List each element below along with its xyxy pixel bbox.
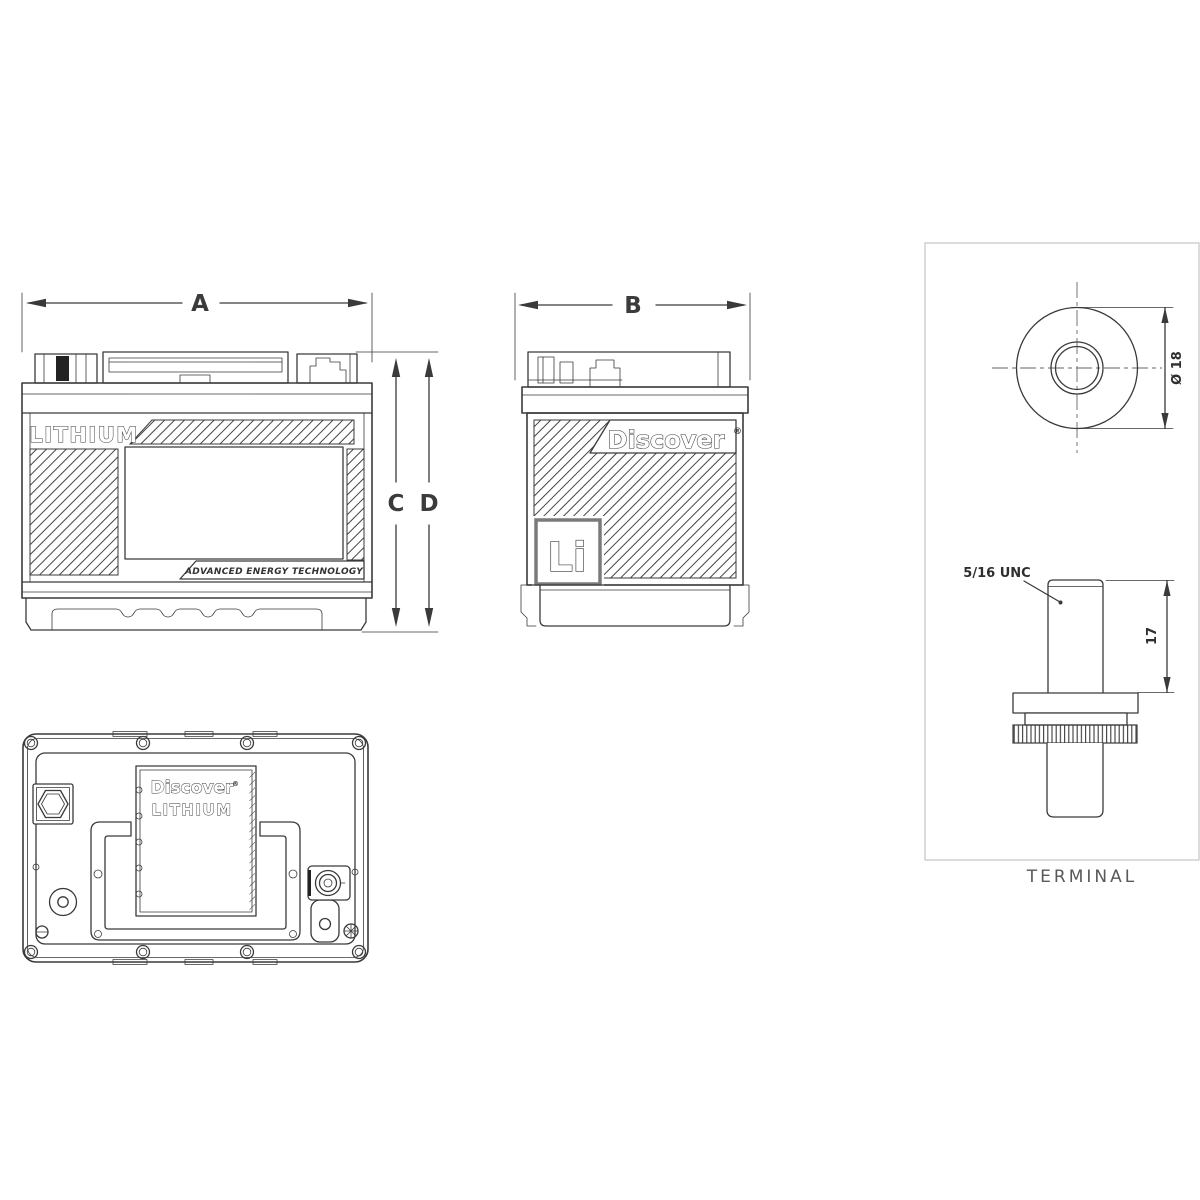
dim-label-B: B bbox=[624, 293, 642, 319]
top-brand-trademark: ® bbox=[232, 780, 239, 788]
terminal-caption: TERMINAL bbox=[1026, 867, 1137, 887]
front-label-area bbox=[125, 447, 343, 559]
hex-terminal bbox=[33, 784, 73, 824]
terminal-detail-panel: Ø 18 5/16 UNC 17 TERMINAL bbox=[925, 243, 1199, 887]
front-tagline: ADVANCED ENERGY TECHNOLOGY bbox=[184, 567, 364, 577]
dim-label-A: A bbox=[191, 291, 209, 317]
dim-label-D: D bbox=[419, 491, 438, 517]
slotted-screw bbox=[36, 926, 48, 938]
terminal-tab bbox=[311, 900, 339, 942]
dim-post-diameter: Ø 18 bbox=[1170, 351, 1185, 385]
dim-label-C: C bbox=[388, 491, 405, 517]
top-brand-discover: Discover bbox=[151, 778, 234, 798]
top-brand-lithium: LITHIUM bbox=[151, 801, 232, 819]
knurled-ring bbox=[1013, 725, 1137, 743]
drawing-canvas: A ADVANCED ENERGY TECHNOLOGY LITHIUM bbox=[0, 0, 1200, 1200]
front-brand-lithium: LITHIUM bbox=[29, 423, 138, 447]
negative-terminal-mark bbox=[56, 356, 69, 381]
vent-circle bbox=[50, 889, 77, 916]
side-brand-trademark: ® bbox=[733, 427, 742, 437]
cross-screw bbox=[344, 924, 358, 938]
side-brand-discover: Discover bbox=[608, 426, 725, 454]
top-view: Discover ® LITHIUM bbox=[23, 732, 368, 965]
base-scalloped-plate bbox=[52, 609, 322, 630]
side-view: Discover ® Li bbox=[521, 352, 749, 626]
round-terminal bbox=[308, 866, 350, 900]
dim-stud-height: 17 bbox=[1145, 627, 1160, 645]
front-view: ADVANCED ENERGY TECHNOLOGY LITHIUM bbox=[22, 352, 372, 630]
label-edge-ticks bbox=[250, 771, 256, 911]
side-chemistry-li: Li bbox=[547, 535, 586, 581]
battery-technical-drawing: A ADVANCED ENERGY TECHNOLOGY LITHIUM bbox=[0, 0, 1200, 1200]
thread-spec-label: 5/16 UNC bbox=[963, 566, 1030, 581]
